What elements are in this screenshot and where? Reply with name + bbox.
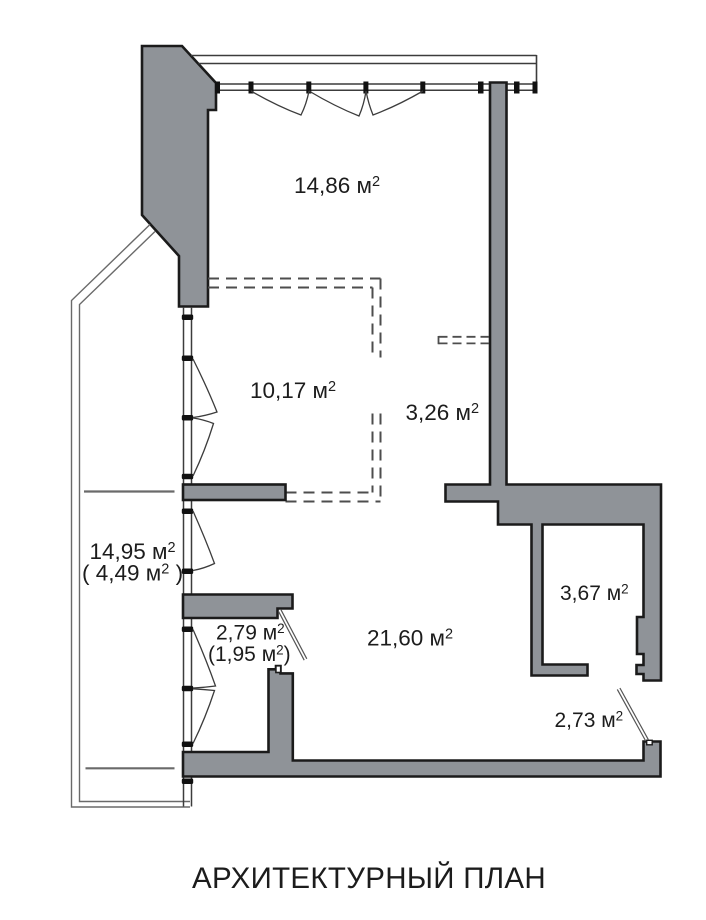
svg-text:3,26 м2: 3,26 м2 xyxy=(406,400,480,425)
svg-text:2,79 м2: 2,79 м2 xyxy=(216,621,285,645)
svg-text:2,73 м2: 2,73 м2 xyxy=(555,709,624,733)
svg-text:3,67 м2: 3,67 м2 xyxy=(560,582,629,606)
svg-text:АРХИТЕКТУРНЫЙ ПЛАН: АРХИТЕКТУРНЫЙ ПЛАН xyxy=(192,861,546,895)
svg-text:10,17 м2: 10,17 м2 xyxy=(250,378,336,403)
svg-text:21,60 м2: 21,60 м2 xyxy=(367,626,453,651)
svg-text:14,86 м2: 14,86 м2 xyxy=(294,173,380,198)
